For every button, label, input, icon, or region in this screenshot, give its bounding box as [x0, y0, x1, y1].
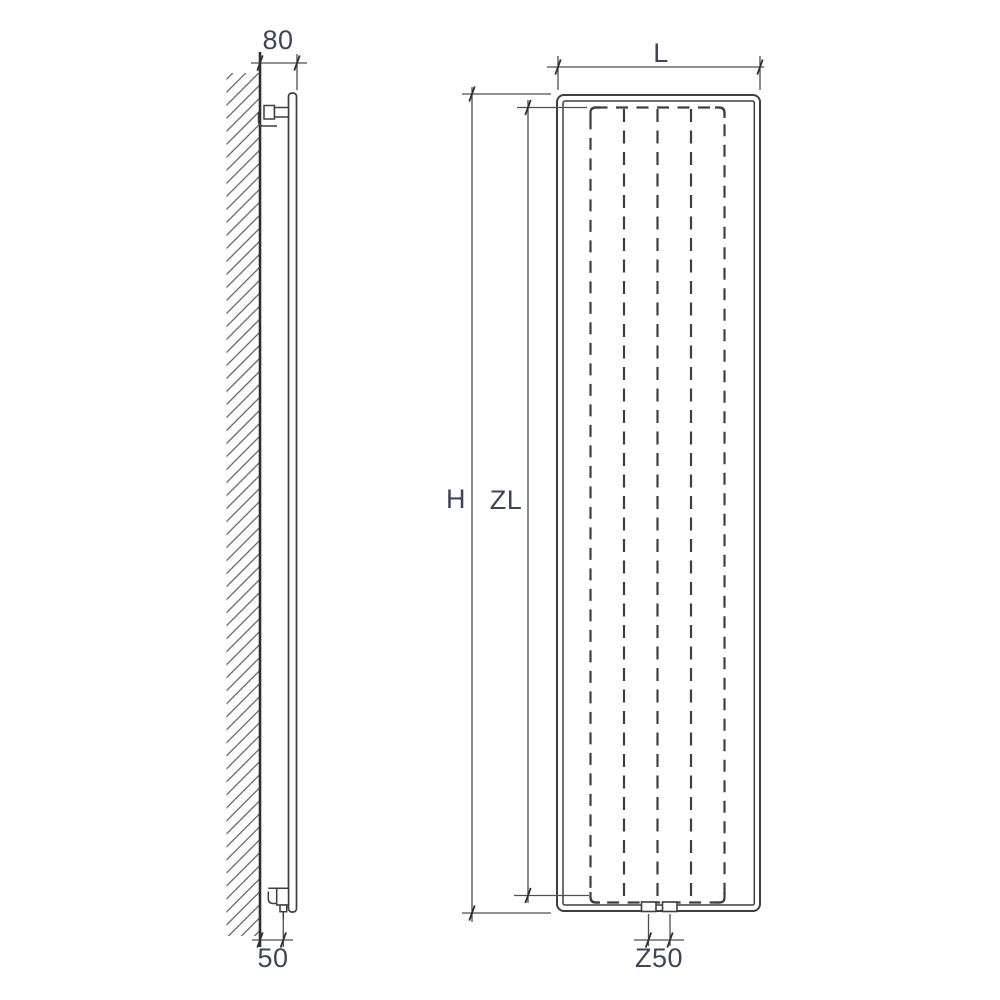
radiator-dimension-drawing: 80 50: [0, 0, 1000, 1000]
top-wall-bracket: [259, 106, 289, 127]
dimension-label-H: H: [446, 484, 466, 514]
dimension-label-50: 50: [257, 943, 288, 973]
front-view: L H ZL Z50: [446, 38, 764, 973]
wall-hatch: [227, 73, 261, 936]
connection-stub-left: [642, 902, 657, 912]
side-view: 80 50: [227, 25, 308, 973]
dimension-label-Z50: Z50: [635, 943, 683, 973]
dimension-label-L: L: [653, 38, 669, 68]
dimension-label-80: 80: [262, 25, 293, 55]
bottom-wall-bracket: [268, 888, 288, 919]
dimension-width-L: L: [547, 38, 764, 90]
drawing-page: 80 50: [0, 0, 1000, 1000]
dimension-connection-Z50: Z50: [634, 914, 684, 973]
connection-stub-right: [663, 902, 678, 912]
dimension-label-ZL: ZL: [490, 485, 523, 515]
radiator-panel-side: [289, 93, 297, 912]
